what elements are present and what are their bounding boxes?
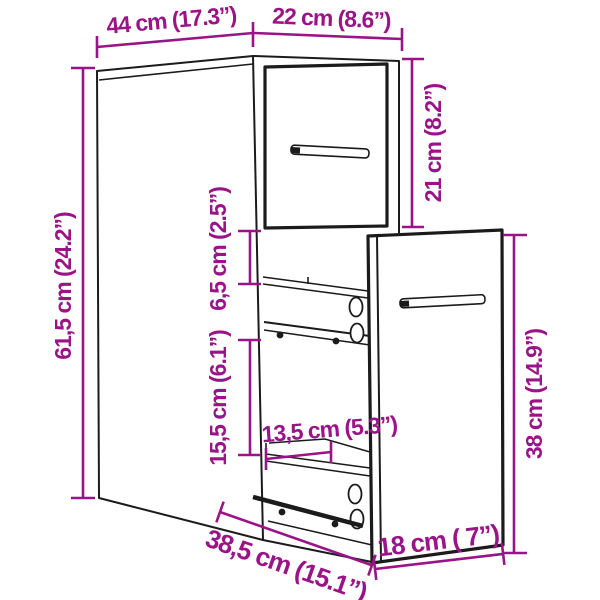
dim-door-height: 21 cm (8.2”): [402, 59, 446, 227]
dim-door-height-label: 21 cm (8.2”): [420, 83, 446, 202]
dim-shelf-gap-label: 6,5 cm (2.5”): [205, 187, 231, 311]
dim-total-height-label: 61,5 cm (24.2”): [50, 212, 76, 360]
dim-pullout-height-label: 38 cm (14.9”): [521, 329, 547, 460]
cabinet-top-edge: [99, 64, 253, 80]
assembly-hole: [351, 324, 364, 343]
dim-top-depth: 44 cm (17.3”): [97, 1, 253, 58]
dim-drawer-opening-label: 15,5 cm (6.1”): [205, 330, 231, 466]
dim-top-width-label: 22 cm (8.6”): [272, 3, 392, 34]
lower-slide-rail: [253, 497, 363, 527]
assembly-hole: [350, 298, 363, 317]
pullout-drawer-unit: [368, 230, 503, 563]
dim-shelf-gap: 6,5 cm (2.5”): [205, 187, 261, 311]
dim-top-width: 22 cm (8.6”): [254, 3, 402, 51]
dim-pullout-height: 38 cm (14.9”): [503, 235, 547, 553]
dim-top-depth-label: 44 cm (17.3”): [105, 1, 237, 39]
cabinet-door-front: [265, 64, 387, 228]
diagram-svg: 44 cm (17.3”) 22 cm (8.6”) 21 cm (8.2”) …: [0, 0, 600, 600]
interior-shelf: [263, 277, 368, 298]
dim-total-height: 61,5 cm (24.2”): [50, 68, 95, 498]
assembly-hole: [349, 485, 362, 504]
cabinet-side-panel: [97, 56, 263, 540]
dim-drawer-opening: 15,5 cm (6.1”): [205, 330, 261, 466]
pullout-drawer-front: [368, 230, 503, 563]
cabinet-dimension-diagram: 44 cm (17.3”) 22 cm (8.6”) 21 cm (8.2”) …: [0, 0, 600, 600]
